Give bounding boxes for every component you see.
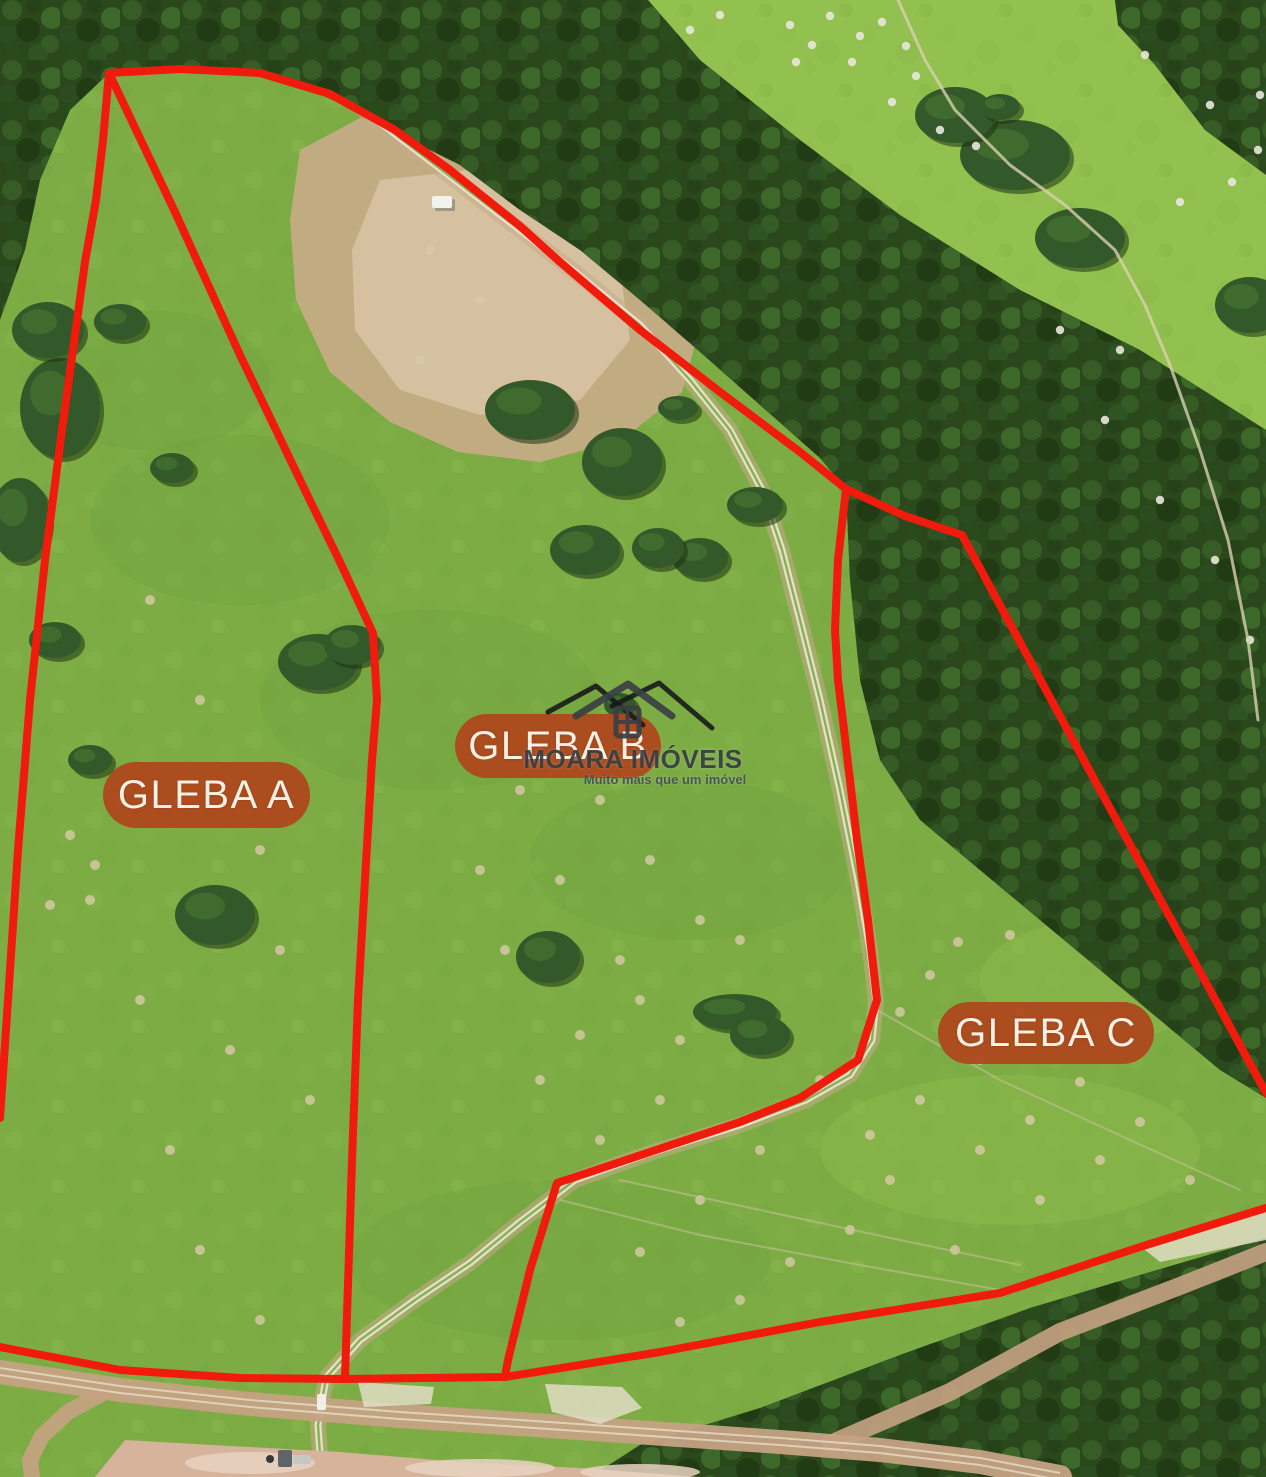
aerial-parcel-photo: GLEBA A GLEBA B GLEBA C MOARA IMÓVEIS Mu…	[0, 0, 1266, 1477]
gleba-c-label: GLEBA C	[938, 1002, 1154, 1064]
gleba-c-label-text: GLEBA C	[955, 1011, 1137, 1056]
gleba-a-label: GLEBA A	[103, 762, 310, 828]
gleba-b-label-text: GLEBA B	[468, 724, 647, 769]
gleba-b-label: GLEBA B	[455, 714, 661, 778]
gleba-a-label-text: GLEBA A	[118, 773, 295, 818]
